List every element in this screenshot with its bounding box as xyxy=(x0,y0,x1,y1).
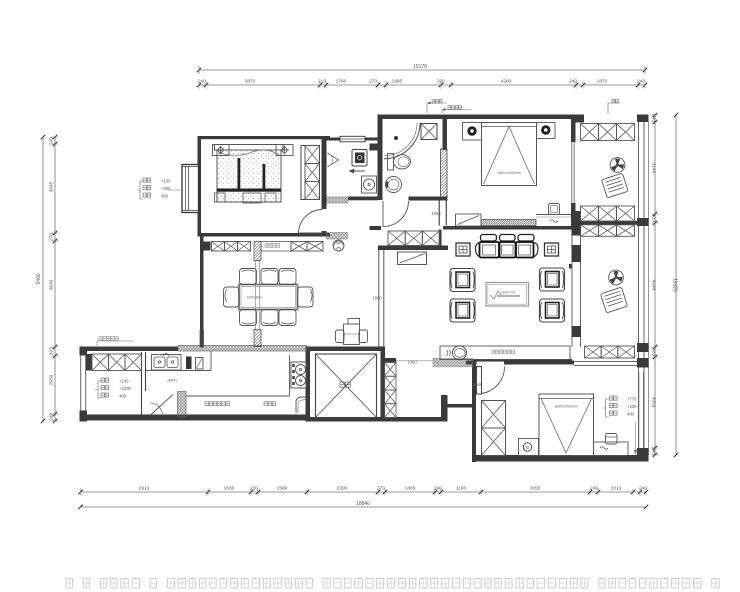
svg-text:240: 240 xyxy=(651,447,657,455)
svg-text:1885: 1885 xyxy=(392,79,403,85)
svg-text:+1200: +1200 xyxy=(119,386,131,391)
svg-text:1760: 1760 xyxy=(336,79,347,85)
svg-text:4240: 4240 xyxy=(651,280,657,291)
svg-text:+770: +770 xyxy=(627,397,637,402)
svg-text:3055: 3055 xyxy=(530,486,541,492)
svg-text:460: 460 xyxy=(161,194,169,199)
svg-text:270: 270 xyxy=(369,79,377,85)
svg-text:1800: 1800 xyxy=(372,296,382,301)
svg-text:+230: +230 xyxy=(627,404,637,409)
svg-text:15170: 15170 xyxy=(413,64,427,70)
svg-text:1800x2000mm: 1800x2000mm xyxy=(497,171,521,175)
svg-text:240: 240 xyxy=(590,486,598,492)
svg-text:370: 370 xyxy=(377,486,385,492)
svg-text:1040: 1040 xyxy=(473,382,483,387)
svg-text:210: 210 xyxy=(318,79,326,85)
svg-text:3140: 3140 xyxy=(651,163,657,174)
svg-text:230: 230 xyxy=(250,486,258,492)
svg-text:1580: 1580 xyxy=(277,486,288,492)
svg-text:240: 240 xyxy=(651,114,657,122)
svg-text:+200: +200 xyxy=(161,186,171,191)
svg-text:240: 240 xyxy=(198,79,206,85)
svg-text:3045: 3045 xyxy=(49,181,55,192)
svg-text:1050: 1050 xyxy=(431,211,441,216)
svg-text:3630: 3630 xyxy=(49,279,55,290)
svg-text:+130: +130 xyxy=(119,379,129,384)
svg-text:240: 240 xyxy=(569,79,577,85)
svg-text:9400: 9400 xyxy=(36,273,42,284)
svg-text:240: 240 xyxy=(637,79,645,85)
svg-text:2650: 2650 xyxy=(49,374,55,385)
svg-text:240: 240 xyxy=(49,413,55,421)
svg-text:1870: 1870 xyxy=(597,79,608,85)
svg-text:2910: 2910 xyxy=(139,486,150,492)
svg-text:320: 320 xyxy=(651,348,657,356)
svg-text:240: 240 xyxy=(639,486,647,492)
svg-text:1630: 1630 xyxy=(224,486,235,492)
svg-text:2010: 2010 xyxy=(611,486,622,492)
svg-text:2390: 2390 xyxy=(337,486,348,492)
svg-text:460: 460 xyxy=(119,394,127,399)
svg-text:(600): (600) xyxy=(167,378,177,383)
svg-text:3050: 3050 xyxy=(651,397,657,408)
svg-text:1400x800: 1400x800 xyxy=(247,296,262,300)
svg-text:320: 320 xyxy=(49,347,55,355)
svg-text:4260: 4260 xyxy=(501,79,512,85)
svg-text:1350x700: 1350x700 xyxy=(501,291,516,295)
svg-text:1800x2000mm: 1800x2000mm xyxy=(554,405,578,409)
svg-text:1060: 1060 xyxy=(407,360,417,365)
svg-text:320: 320 xyxy=(651,214,657,222)
svg-text:240: 240 xyxy=(49,137,55,145)
svg-text:240: 240 xyxy=(434,486,442,492)
svg-text:+130: +130 xyxy=(161,179,171,184)
svg-text:G: G xyxy=(526,445,530,450)
svg-text:3870: 3870 xyxy=(245,79,256,85)
svg-text:1190: 1190 xyxy=(456,486,467,492)
svg-text:11620: 11620 xyxy=(672,278,678,292)
svg-text:320: 320 xyxy=(437,79,445,85)
svg-text:1865: 1865 xyxy=(405,486,416,492)
svg-text:18840: 18840 xyxy=(356,501,370,507)
svg-text:400: 400 xyxy=(627,412,635,417)
svg-text:270: 270 xyxy=(49,233,55,241)
